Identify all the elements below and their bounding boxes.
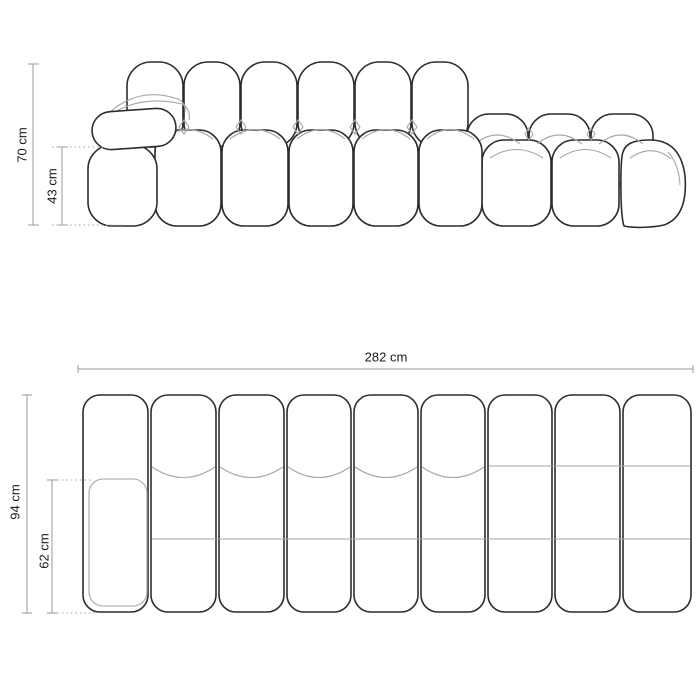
overall-width-label: 282 cm xyxy=(365,351,408,364)
front-view-drawing xyxy=(0,0,700,340)
seat-cushions xyxy=(155,130,482,226)
armrest-base-cushion xyxy=(88,145,157,226)
top-view-drawing xyxy=(0,340,700,700)
chaise-seat-cushions xyxy=(482,140,685,227)
overall-depth-label: 94 cm xyxy=(9,484,22,519)
overall-height-label: 70 cm xyxy=(16,127,29,162)
armrest-capsule xyxy=(91,107,177,151)
dimension-line-282cm xyxy=(78,365,693,373)
dimension-line-70cm xyxy=(28,64,39,225)
chaise-end-cushion xyxy=(621,140,686,227)
plan-armrest-module xyxy=(83,395,148,612)
seat-depth-label: 62 cm xyxy=(38,533,51,568)
dimension-line-94cm xyxy=(22,395,32,613)
seat-height-label: 43 cm xyxy=(46,168,59,203)
plan-modules xyxy=(83,395,691,612)
sofa-dimension-diagram: 70 cm 43 cm 282 cm 94 cm 62 cm xyxy=(0,0,700,700)
